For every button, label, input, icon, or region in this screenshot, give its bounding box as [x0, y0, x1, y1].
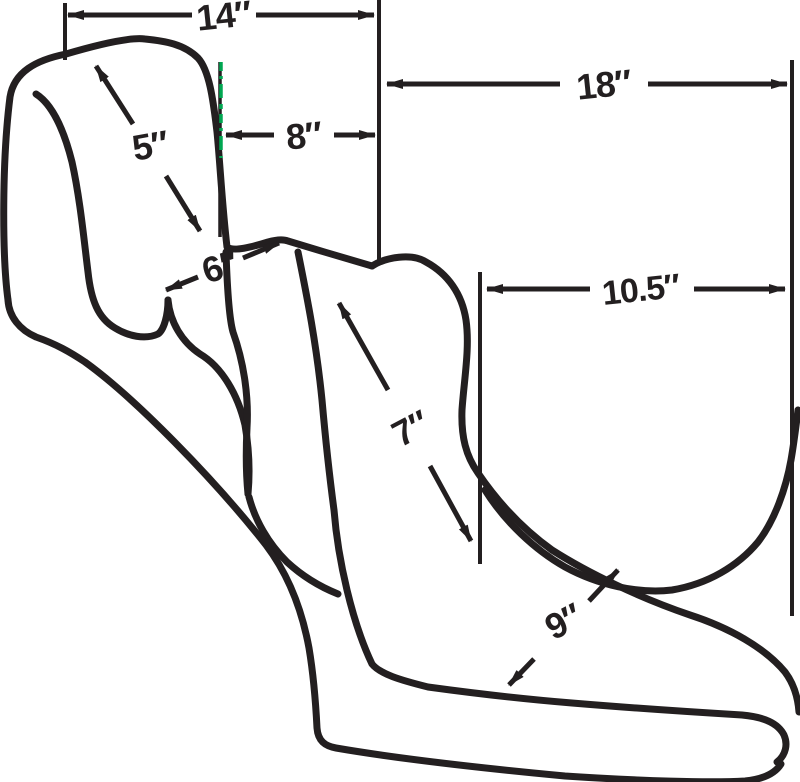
dimension-label-7in: 7″: [385, 402, 436, 455]
dimension-9in-shaft-bottom: [509, 659, 534, 685]
seat-dimension-diagram: 14″ 18″ 8″ 10.5″ 5″ 6″ 7″ 9″: [0, 0, 800, 782]
dimension-18in: 18″: [387, 61, 787, 108]
dimension-7in-shaft-top: [339, 303, 388, 390]
dimension-label-18in: 18″: [574, 61, 633, 108]
dimension-5in: 5″: [96, 66, 200, 231]
extension-lines: [65, 0, 792, 616]
dimension-14in: 14″: [68, 0, 374, 39]
dimension-5in-shaft-bottom: [166, 176, 200, 231]
dimension-label-10-5in: 10.5″: [600, 267, 682, 313]
seat-outline-driver-bucket-return: [226, 252, 248, 494]
seat-outline-passenger-hump: [372, 257, 799, 712]
seat-outline-passenger-bucket: [485, 410, 798, 591]
seat-outline-backrest-and-valley: [4, 39, 372, 300]
dimension-label-8in: 8″: [284, 113, 324, 158]
dimension-9in: 9″: [509, 570, 618, 685]
dimension-label-14in: 14″: [194, 0, 253, 39]
dimension-7in: 7″: [339, 303, 471, 541]
dimension-6in: 6″: [166, 241, 279, 291]
dimension-6in-shaft-left: [166, 277, 198, 290]
dimension-5in-shaft-top: [96, 66, 133, 124]
dimension-7in-shaft-bottom: [430, 466, 471, 541]
dimension-8in: 8″: [226, 113, 375, 158]
dimension-label-5in: 5″: [129, 122, 172, 169]
dimension-10-5in: 10.5″: [487, 267, 785, 313]
seat-outline-driver-bucket-seam: [168, 300, 249, 494]
dimension-label-9in: 9″: [538, 595, 589, 648]
diagram-canvas: 14″ 18″ 8″ 10.5″ 5″ 6″ 7″ 9″: [0, 0, 800, 782]
seat-outline-welt-line: [298, 252, 786, 762]
